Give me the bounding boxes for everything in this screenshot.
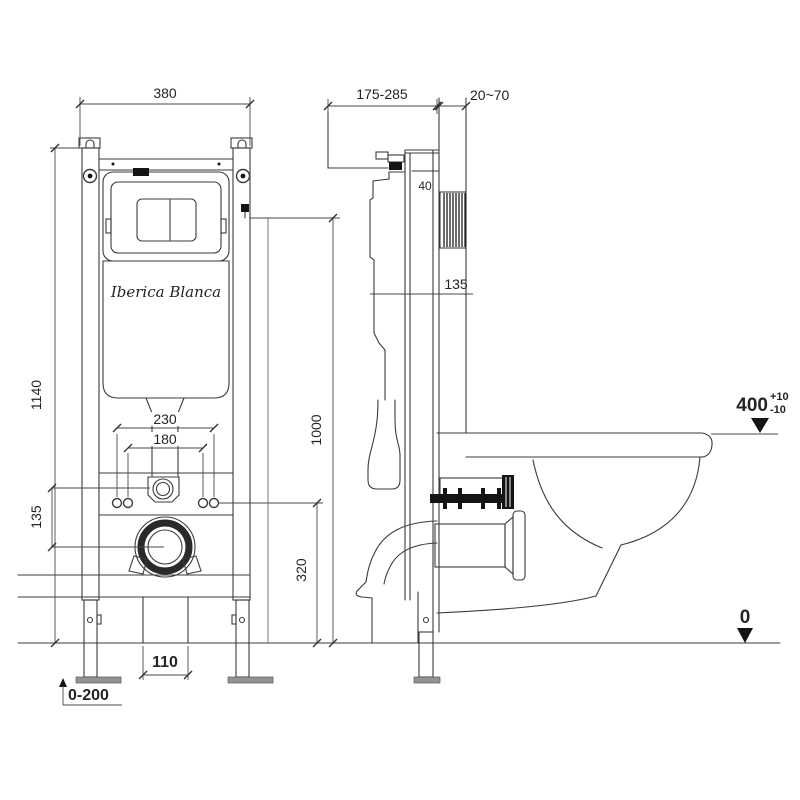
dim-bolt-span-outer: 230 bbox=[153, 411, 177, 427]
right-leg bbox=[236, 600, 249, 677]
datum-triangle-floor bbox=[737, 628, 753, 643]
dual-flush-buttons bbox=[137, 199, 196, 241]
access-panel-outer bbox=[103, 172, 229, 261]
left-leg-clamp bbox=[97, 615, 101, 624]
dim-rim-height: 400 bbox=[736, 395, 768, 416]
reference-marker bbox=[241, 204, 249, 212]
brand-logo: Iberica Blanca bbox=[110, 283, 221, 301]
rim-height-datum: 400 +10 -10 bbox=[711, 391, 789, 434]
side-leg bbox=[419, 632, 433, 677]
dim-bolt-span-inner: 180 bbox=[153, 431, 177, 447]
dim-recess-depth: 40 bbox=[418, 179, 432, 193]
drain-elbow-side bbox=[356, 521, 437, 643]
left-leg bbox=[84, 600, 97, 677]
dim-outlet-width: 110 bbox=[152, 654, 178, 671]
dim-front-height: 1140 bbox=[28, 380, 44, 410]
right-rail bbox=[233, 148, 250, 600]
datum-triangle-rim bbox=[751, 418, 769, 433]
right-hanger-slot bbox=[238, 140, 246, 148]
technical-drawing-page: Iberica Blanca bbox=[0, 0, 800, 800]
drain-connector bbox=[435, 511, 525, 580]
flush-pipe-side bbox=[368, 400, 400, 489]
left-leg-hole bbox=[88, 618, 93, 623]
mounting-rod bbox=[430, 475, 514, 509]
dim-front-width: 380 bbox=[153, 85, 177, 101]
panel-clip-right bbox=[221, 219, 226, 233]
dim-wall-finish: 20~70 bbox=[470, 87, 510, 103]
floor-datum: 0 bbox=[737, 607, 753, 643]
cistern-body bbox=[103, 261, 229, 398]
panel-latch bbox=[133, 168, 149, 176]
dim-foot-range: 0-200 bbox=[68, 687, 109, 704]
right-foot-plate bbox=[228, 677, 273, 683]
right-leg-hole bbox=[240, 618, 245, 623]
side-foot-plate bbox=[414, 677, 440, 683]
dim-floor-level: 0 bbox=[740, 607, 751, 628]
left-screw-icon bbox=[84, 170, 97, 183]
front-dimensions: 380 1140 230 180 135 320 1000 11 bbox=[28, 85, 340, 705]
dim-inlet-to-drain: 135 bbox=[28, 505, 44, 529]
right-leg-clamp bbox=[232, 615, 236, 624]
bracket-bolt-body bbox=[388, 155, 404, 162]
crossbar-dot-left bbox=[112, 163, 115, 166]
cistern-side-profile bbox=[370, 172, 405, 400]
dim-rim-tol-minus: -10 bbox=[770, 404, 786, 416]
right-screw-icon bbox=[237, 170, 250, 183]
dim-rim-tol-plus: +10 bbox=[770, 391, 789, 403]
dim-reference-height: 1000 bbox=[308, 414, 324, 445]
bracket-fitting bbox=[376, 152, 388, 159]
dim-depth-range: 175-285 bbox=[356, 86, 408, 102]
side-view bbox=[328, 98, 712, 683]
dim-drain-height: 320 bbox=[293, 558, 309, 582]
toilet-frame-dimension-drawing: Iberica Blanca bbox=[0, 0, 800, 800]
front-view: Iberica Blanca bbox=[18, 138, 273, 683]
dim-supply-offset: 135 bbox=[444, 276, 468, 292]
flush-plate-recess bbox=[440, 192, 466, 248]
inlet-flange-inner-circle bbox=[157, 483, 170, 496]
left-foot-plate bbox=[76, 677, 121, 683]
crossbar-dot-right bbox=[218, 163, 221, 166]
left-hanger-slot bbox=[86, 140, 94, 148]
fixing-bolt-holes bbox=[113, 499, 219, 508]
bracket-bolt-head bbox=[389, 162, 402, 170]
side-leg-hole bbox=[424, 618, 429, 623]
foot-range-arrow bbox=[59, 678, 67, 687]
toilet-bowl-profile bbox=[437, 433, 712, 613]
panel-clip-left bbox=[106, 219, 111, 233]
access-panel-inner bbox=[111, 182, 221, 253]
left-rail bbox=[82, 148, 99, 600]
